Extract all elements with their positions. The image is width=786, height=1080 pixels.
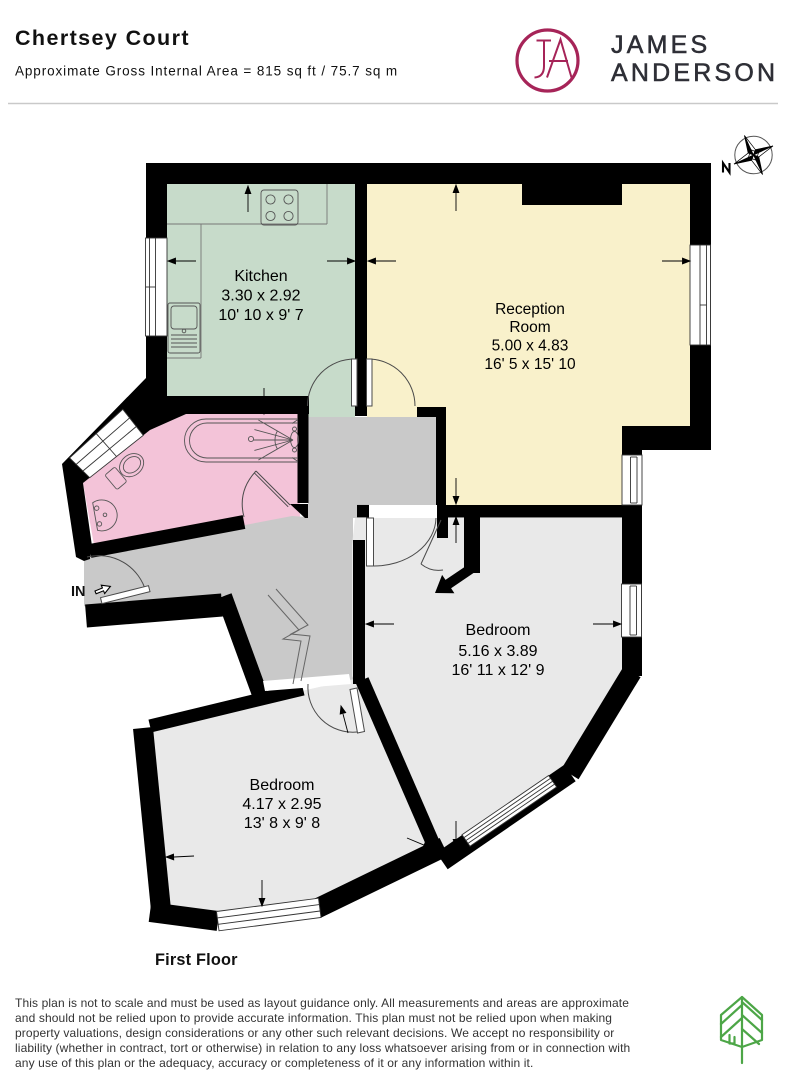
svg-text:Bedroom: Bedroom bbox=[466, 622, 531, 639]
svg-text:5.00 x 4.83: 5.00 x 4.83 bbox=[492, 338, 569, 355]
svg-text:Approximate Gross Internal Are: Approximate Gross Internal Area = 815 sq… bbox=[15, 64, 398, 79]
svg-text:Room: Room bbox=[509, 319, 550, 336]
svg-text:16' 11 x 12' 9: 16' 11 x 12' 9 bbox=[452, 662, 545, 679]
svg-text:liability (whether in contract: liability (whether in contract, tort or … bbox=[15, 1041, 630, 1055]
svg-text:IN: IN bbox=[71, 584, 86, 600]
svg-text:Reception: Reception bbox=[495, 301, 565, 318]
svg-text:13' 8 x 9' 8: 13' 8 x 9' 8 bbox=[244, 815, 320, 832]
svg-text:4.17 x 2.95: 4.17 x 2.95 bbox=[242, 796, 321, 813]
svg-text:5.16 x 3.89: 5.16 x 3.89 bbox=[458, 643, 537, 660]
svg-text:3.30 x 2.92: 3.30 x 2.92 bbox=[221, 288, 300, 305]
svg-text:This plan is not to scale and: This plan is not to scale and must be us… bbox=[15, 996, 629, 1010]
svg-text:property valuations, design co: property valuations, design consideratio… bbox=[15, 1026, 614, 1040]
svg-text:Kitchen: Kitchen bbox=[234, 268, 287, 285]
svg-text:10' 10 x 9' 7: 10' 10 x 9' 7 bbox=[218, 307, 303, 324]
svg-text:any use of this plan or the ad: any use of this plan or the adequacy, ac… bbox=[15, 1056, 533, 1070]
svg-text:Bedroom: Bedroom bbox=[250, 777, 315, 794]
svg-text:First Floor: First Floor bbox=[155, 951, 238, 969]
svg-text:and should not be relied upon: and should not be relied upon to provide… bbox=[15, 1011, 612, 1025]
svg-text:ANDERSON: ANDERSON bbox=[611, 59, 778, 87]
svg-text:16' 5 x 15' 10: 16' 5 x 15' 10 bbox=[484, 356, 576, 373]
svg-text:JAMES: JAMES bbox=[611, 31, 710, 59]
svg-text:Chertsey Court: Chertsey Court bbox=[15, 26, 190, 50]
